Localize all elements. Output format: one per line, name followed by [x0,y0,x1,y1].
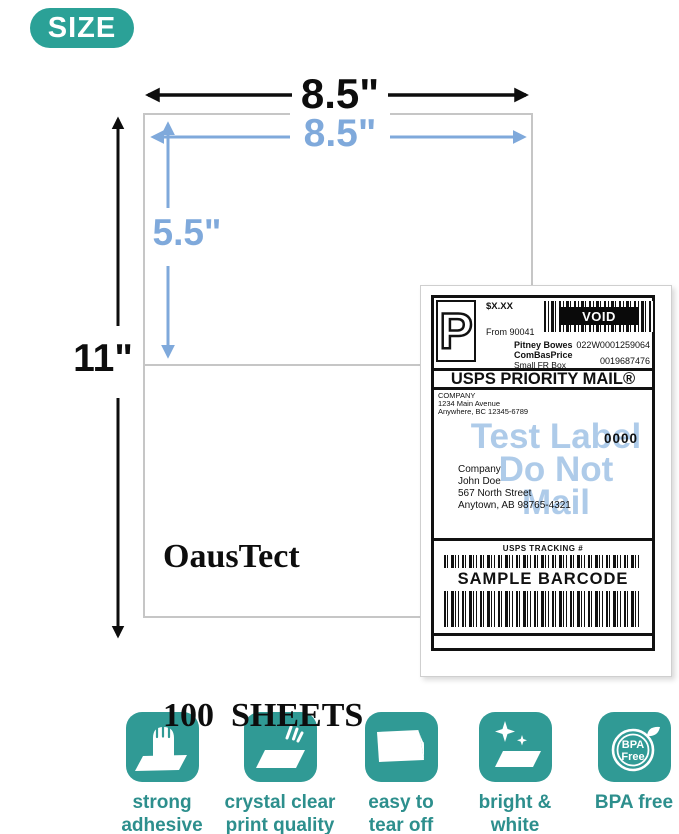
tracking-section: USPS TRACKING # SAMPLE BARCODE [434,538,652,633]
recipient-line-3: 567 North Street [458,488,571,500]
priority-mail-p-logo: P [436,300,476,362]
recipient-line-1: Company [458,464,571,476]
postage-section: P $X.XX From 90041 VOID Pitney Bowes Com… [434,298,652,368]
size-badge-label: SIZE [48,12,116,45]
address-section: COMPANY 1234 Main Avenue Anywhere, BC 12… [434,390,652,538]
label-border-box: P $X.XX From 90041 VOID Pitney Bowes Com… [431,295,655,651]
void-overlay: VOID [559,307,639,325]
brand-name: OausTect [163,530,365,583]
sheet-text-block: OausTect 100 SHEETS 200 LABELS [163,424,365,834]
half-height-label: 5.5" [144,212,230,254]
blank-bottom-section [434,633,652,648]
tracking-barcode-top [444,555,642,568]
void-barcode: VOID [544,301,654,332]
recipient-line-4: Anytown, AB 98765-4321 [458,500,571,512]
peel-corner-label-icon [365,712,438,782]
svg-text:Free: Free [621,751,644,763]
feature-label: bright & white [455,791,575,834]
feature-label: BPA free [574,791,679,814]
meter-number-1: 022W0001259064 [576,340,650,350]
outer-height-label: 11" [64,337,142,381]
tracking-barcode-bottom [444,591,642,627]
recipient-address: Company John Doe 567 North Street Anytow… [458,464,571,512]
meter-info: Pitney Bowes ComBasPrice Small FR Box [514,340,573,370]
meter-number-2: 0019687476 [600,356,650,366]
sample-barcode-caption: SAMPLE BARCODE [434,570,652,589]
tracking-title: USPS TRACKING # [434,544,652,553]
meter-line-3: Small FR Box [514,360,573,370]
meter-line-1: Pitney Bowes [514,340,573,350]
shipping-label-preview: P $X.XX From 90041 VOID Pitney Bowes Com… [420,285,672,677]
priority-mail-banner: USPS PRIORITY MAIL® [434,368,652,390]
recipient-line-2: John Doe [458,476,571,488]
svg-text:P: P [439,303,472,359]
bpa-free-badge-icon: BPA Free [598,712,671,782]
size-badge: SIZE [30,8,134,48]
zone-code: 0000 [604,431,638,446]
bright-star-label-icon [479,712,552,782]
feature-bright-white: bright & white [455,712,575,834]
svg-text:BPA: BPA [622,739,644,751]
meter-line-2: ComBasPrice [514,350,573,360]
postage-origin: From 90041 [486,327,535,337]
outer-width-label: 8.5" [292,70,388,118]
sender-line-3: Anywhere, BC 12345-6789 [438,408,528,416]
feature-bpa-free: BPA Free BPA free [574,712,679,814]
postage-price: $X.XX [486,301,513,312]
sender-address: COMPANY 1234 Main Avenue Anywhere, BC 12… [438,392,528,416]
product-infographic: SIZE OausTect 100 SHEETS 200 LABELS [0,0,679,834]
inner-width-label: 8.5" [290,112,390,156]
p-letter-icon: P [438,302,474,360]
sheet-count: 100 SHEETS [163,689,365,742]
